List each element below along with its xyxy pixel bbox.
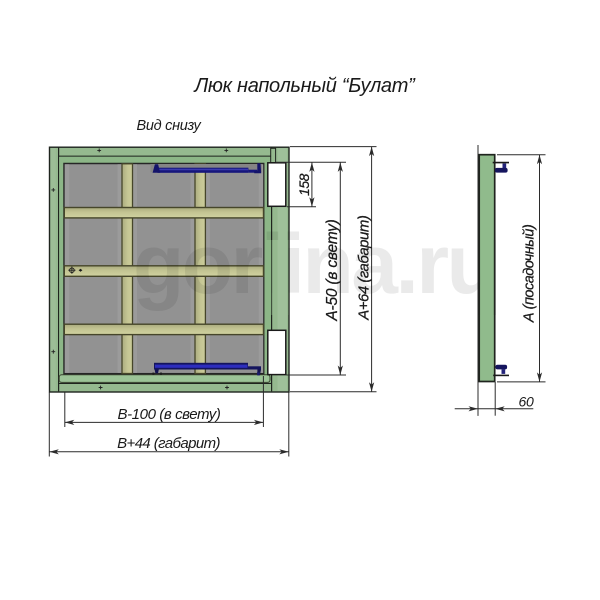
svg-text:А (посадочный): А (посадочный) (522, 225, 538, 323)
svg-text:158: 158 (296, 173, 312, 196)
svg-text:Люк напольный “Булат”: Люк напольный “Булат” (193, 75, 417, 97)
svg-text:60: 60 (519, 393, 534, 409)
svg-text:gorlina.ru: gorlina.ru (133, 217, 495, 311)
svg-text:В-100 (в свету): В-100 (в свету) (117, 406, 220, 423)
svg-text:Вид снизу: Вид снизу (137, 118, 202, 134)
svg-text:В+44 (габарит): В+44 (габарит) (117, 435, 220, 452)
